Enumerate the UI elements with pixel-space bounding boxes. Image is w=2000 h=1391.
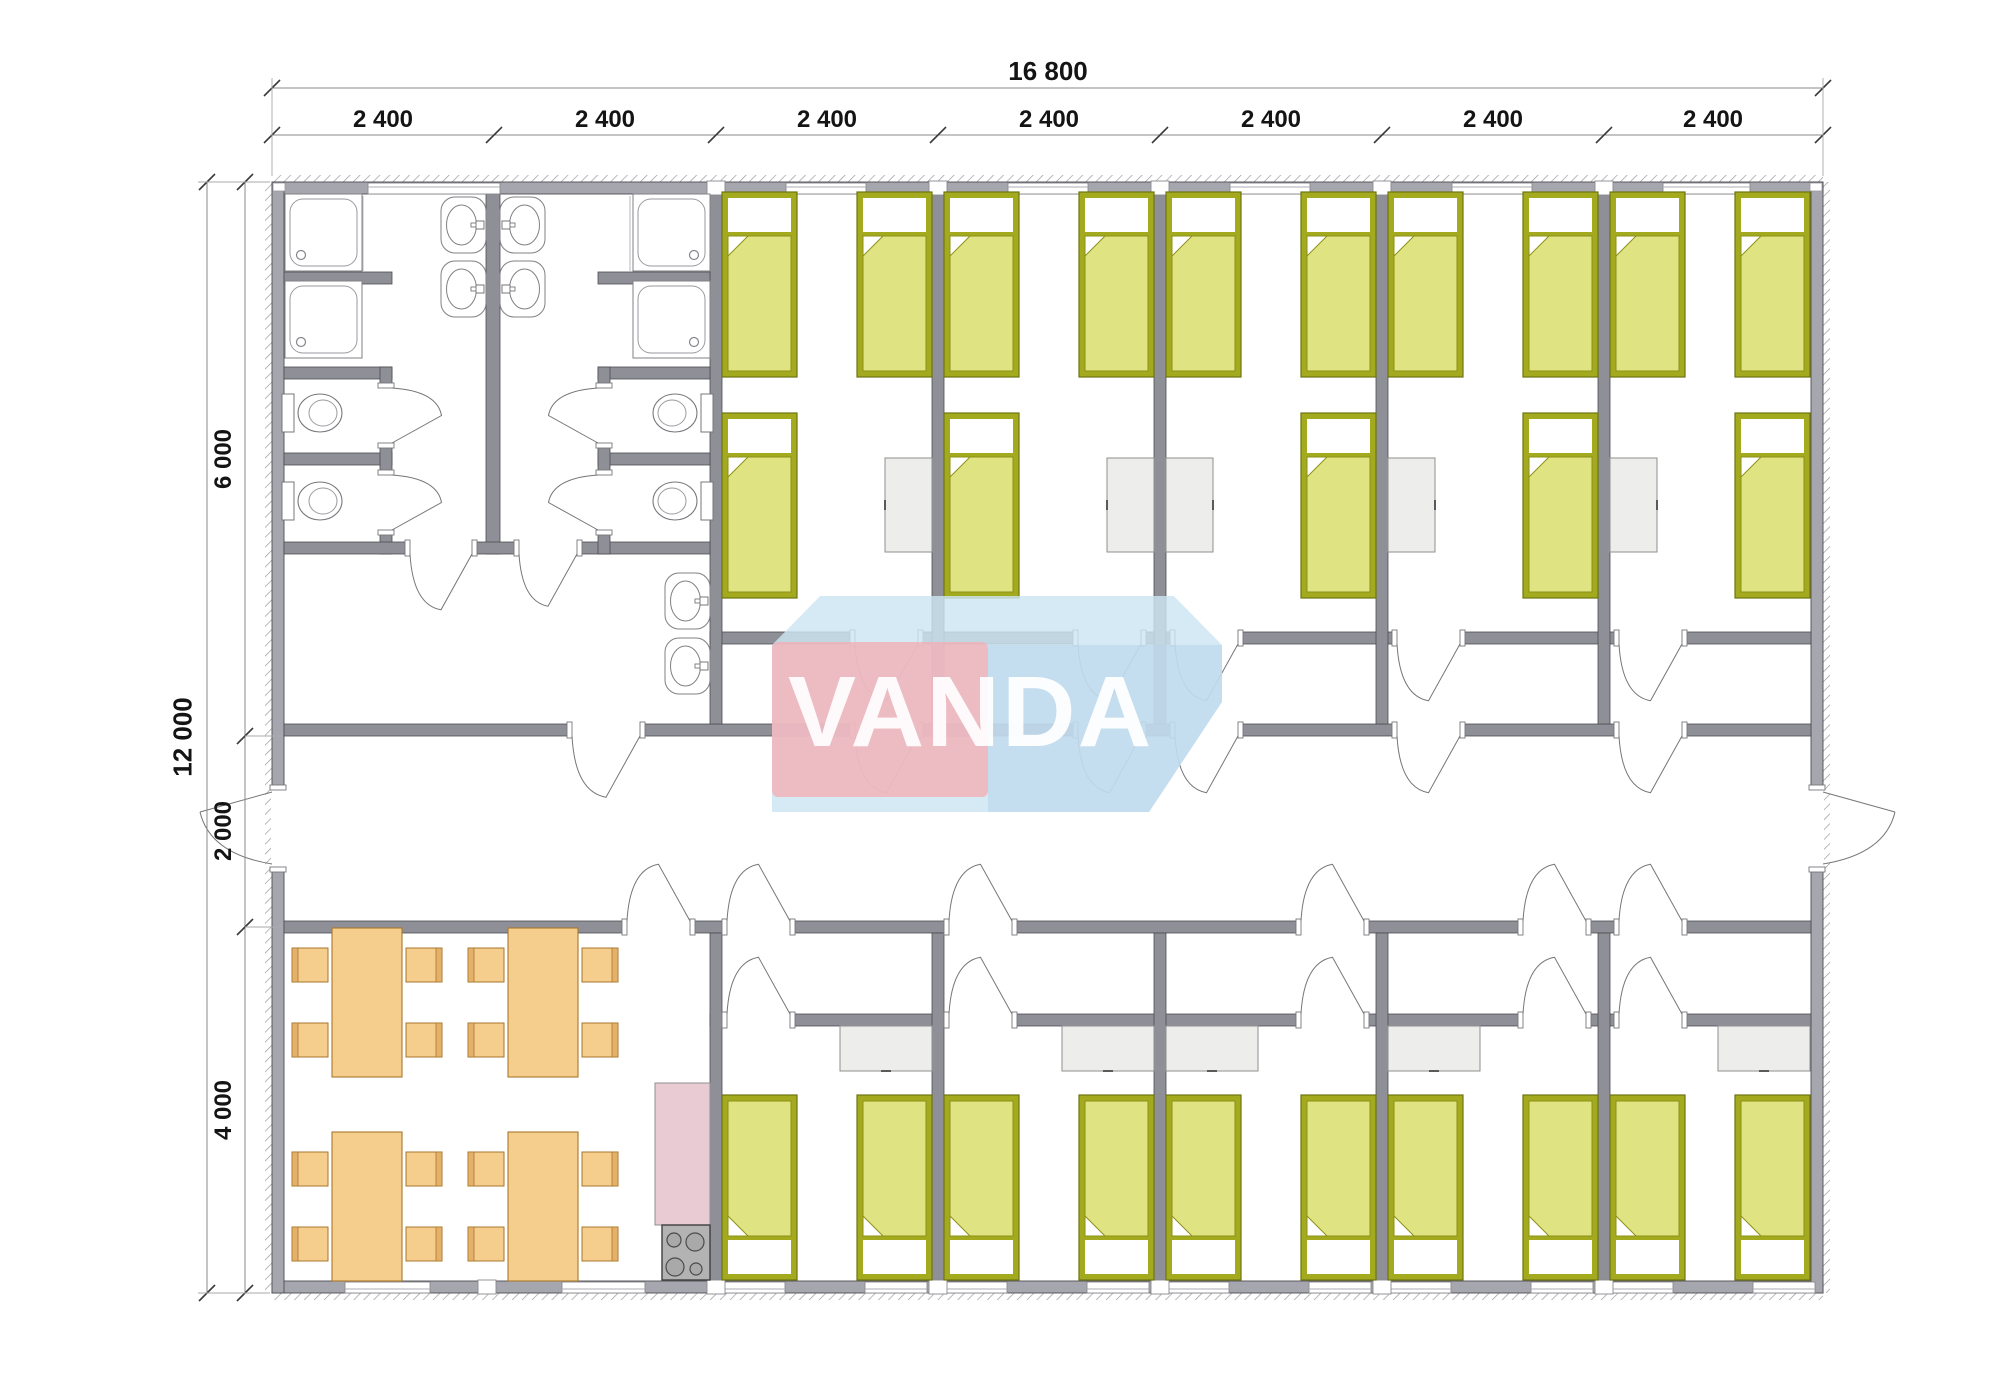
interior-wall <box>284 453 392 465</box>
bed-mattress <box>728 457 791 592</box>
door-jamb <box>1296 919 1301 935</box>
window <box>1167 1282 1229 1293</box>
desk <box>1166 458 1213 552</box>
door-jamb <box>1682 1012 1687 1028</box>
door-jamb <box>567 722 572 738</box>
door-jamb <box>640 722 645 738</box>
stove-burner <box>667 1233 681 1247</box>
door-opening <box>1523 1013 1586 1027</box>
chair-backrest <box>292 1152 298 1186</box>
bed-pillow <box>863 1240 926 1274</box>
door-jamb <box>1614 722 1619 738</box>
exterior-door-swing <box>1823 812 1895 864</box>
bed-pillow <box>1741 1240 1804 1274</box>
door-jamb <box>1518 919 1523 935</box>
sink-tap-spout <box>510 287 515 291</box>
bed-mattress <box>1741 1101 1804 1236</box>
door-jamb <box>850 630 855 646</box>
door-jamb <box>270 785 286 790</box>
chair-backrest <box>436 1023 442 1057</box>
bed-pillow <box>1307 198 1370 232</box>
interior-wall <box>1154 194 1166 724</box>
door-opening <box>572 723 640 737</box>
window <box>786 183 866 194</box>
door-opening <box>855 723 918 737</box>
stove-burner <box>690 1263 702 1275</box>
window <box>345 1282 430 1293</box>
shower-tray <box>285 194 362 271</box>
interior-wall <box>1598 194 1610 724</box>
door-jamb <box>1238 722 1243 738</box>
interior-wall <box>1598 933 1610 1281</box>
window <box>723 1282 785 1293</box>
door-jamb <box>1682 630 1687 646</box>
toilet-tank <box>701 482 713 520</box>
bed-pillow <box>863 198 926 232</box>
window <box>1309 1282 1371 1293</box>
bed-mattress <box>1741 236 1804 371</box>
door-jamb <box>1460 630 1465 646</box>
door-jamb <box>1809 867 1825 872</box>
sink-tap <box>502 221 510 229</box>
window <box>945 1282 1007 1293</box>
door-opening <box>379 475 393 530</box>
desk <box>885 458 932 552</box>
door-opening <box>519 541 577 555</box>
door-opening <box>949 920 1012 934</box>
toilet-bowl <box>298 482 342 520</box>
bed-pillow <box>1616 198 1679 232</box>
bed-mattress <box>863 236 926 371</box>
window <box>1753 1282 1815 1293</box>
dim-segment-label: 2 400 <box>1683 106 1743 133</box>
chair-backrest <box>468 1023 474 1057</box>
dim-segment-label: 2 400 <box>353 106 413 133</box>
desk <box>1388 458 1435 552</box>
interior-wall <box>710 194 722 724</box>
bed-pillow <box>1172 198 1235 232</box>
bed-mattress <box>1529 1101 1592 1236</box>
door-opening <box>1523 920 1586 934</box>
door-jamb <box>850 722 855 738</box>
desk <box>1107 458 1154 552</box>
door-opening <box>1175 723 1238 737</box>
door-jamb <box>1809 785 1825 790</box>
door-jamb <box>378 383 394 388</box>
module-joint <box>1373 1280 1391 1294</box>
bed-mattress <box>728 1101 791 1236</box>
bed-pillow <box>1529 419 1592 453</box>
desk <box>1062 1026 1154 1071</box>
window <box>865 1282 927 1293</box>
door-jamb <box>1141 630 1146 646</box>
interior-wall <box>710 933 722 1281</box>
bed-mattress <box>1307 1101 1370 1236</box>
bed-pillow <box>1307 1240 1370 1274</box>
door-jamb <box>1012 919 1017 935</box>
module-joint <box>1151 1280 1169 1294</box>
door-jamb <box>622 919 627 935</box>
desk <box>1166 1026 1258 1071</box>
door-jamb <box>944 1012 949 1028</box>
wall-hatch <box>272 1293 1823 1300</box>
window <box>368 183 500 194</box>
bed-mattress <box>1172 1101 1235 1236</box>
sink-tap <box>700 597 708 605</box>
interior-wall <box>1376 933 1388 1281</box>
bed-mattress <box>1616 236 1679 371</box>
door-jamb <box>1460 722 1465 738</box>
module-joint <box>929 1280 947 1294</box>
shower-tray <box>285 281 362 358</box>
wall-hatch <box>272 175 1823 182</box>
door-jamb <box>918 722 923 738</box>
module-joint <box>478 1280 496 1294</box>
dimension-total-height: 12 000 <box>168 697 199 777</box>
door-jamb <box>270 867 286 872</box>
door-jamb <box>790 919 795 935</box>
bed-pillow <box>1394 1240 1457 1274</box>
door-opening <box>1619 920 1682 934</box>
door-jamb <box>378 470 394 475</box>
door-opening <box>1619 631 1682 645</box>
toilet-tank <box>701 394 713 432</box>
dim-segment-label: 2 400 <box>1463 106 1523 133</box>
bed-mattress <box>1307 457 1370 592</box>
door-jamb <box>1392 630 1397 646</box>
door-opening <box>1397 631 1460 645</box>
bed-pillow <box>950 419 1013 453</box>
chair-backrest <box>468 1152 474 1186</box>
bed-pillow <box>1085 198 1148 232</box>
bed-mattress <box>1085 1101 1148 1236</box>
bed-mattress <box>863 1101 926 1236</box>
bed-pillow <box>950 198 1013 232</box>
door-jamb <box>1073 722 1078 738</box>
bed-pillow <box>728 1240 791 1274</box>
dim-segment-label: 2 400 <box>797 106 857 133</box>
door-jamb <box>1614 1012 1619 1028</box>
window <box>1008 183 1088 194</box>
door-opening <box>1175 631 1238 645</box>
chair-backrest <box>612 1227 618 1261</box>
door-opening <box>727 920 790 934</box>
door-jamb <box>1296 1012 1301 1028</box>
bed-pillow <box>950 1240 1013 1274</box>
dim-segment-label: 2 400 <box>1019 106 1079 133</box>
sink-tap <box>700 662 708 670</box>
stove-burner <box>686 1233 704 1251</box>
exterior-wall <box>1811 182 1823 1293</box>
bed-pillow <box>1616 1240 1679 1274</box>
chair-backrest <box>612 948 618 982</box>
door-jamb <box>1073 630 1078 646</box>
window <box>1452 183 1532 194</box>
door-jamb <box>596 530 612 535</box>
interior-wall <box>284 542 410 554</box>
chair-backrest <box>436 1152 442 1186</box>
door-jamb <box>1518 1012 1523 1028</box>
door-jamb <box>1614 630 1619 646</box>
chair-backrest <box>612 1152 618 1186</box>
dimension-total-width: 16 800 <box>1008 56 1088 87</box>
dim-segment-label: 2 400 <box>1241 106 1301 133</box>
desk <box>1388 1026 1480 1071</box>
wall-hatch <box>265 182 272 1293</box>
sink-tap-spout <box>510 223 515 227</box>
dining-table <box>332 1132 402 1281</box>
sink-tap-spout <box>695 664 700 668</box>
bed-pillow <box>1307 419 1370 453</box>
bed-mattress <box>1172 236 1235 371</box>
bed-mattress <box>1529 457 1592 592</box>
module-joint <box>1595 1280 1613 1294</box>
dim-segment-label: 2 400 <box>575 106 635 133</box>
door-jamb <box>514 540 519 556</box>
door-opening <box>597 388 611 443</box>
bed-mattress <box>950 236 1013 371</box>
door-opening <box>727 1013 790 1027</box>
door-opening <box>1301 1013 1364 1027</box>
toilet-bowl <box>298 394 342 432</box>
sink-tap-spout <box>695 599 700 603</box>
bed-pillow <box>728 419 791 453</box>
interior-wall <box>932 194 944 724</box>
desk <box>1610 458 1657 552</box>
door-jamb <box>596 443 612 448</box>
plan-drawing: 2 4002 4002 4002 4002 4002 4002 4006 000… <box>0 0 2000 1391</box>
bed-pillow <box>728 198 791 232</box>
stove-burner <box>666 1258 684 1276</box>
bed-mattress <box>1394 1101 1457 1236</box>
sink-tap <box>476 285 484 293</box>
door-opening <box>1619 1013 1682 1027</box>
bed-mattress <box>1616 1101 1679 1236</box>
bed-mattress <box>1307 236 1370 371</box>
bed-pillow <box>1529 198 1592 232</box>
dim-segment-label: 4 000 <box>210 1080 237 1140</box>
window <box>1531 1282 1593 1293</box>
bed-mattress <box>1529 236 1592 371</box>
window <box>562 1282 645 1293</box>
interior-wall <box>486 194 500 554</box>
wall-corner-notch <box>1810 183 1822 191</box>
door-opening <box>597 475 611 530</box>
door-jamb <box>690 919 695 935</box>
door-jamb <box>405 540 410 556</box>
bed-mattress <box>950 1101 1013 1236</box>
toilet-bowl <box>653 394 697 432</box>
desk <box>840 1026 932 1071</box>
sink-tap <box>502 285 510 293</box>
bed-pillow <box>1741 198 1804 232</box>
door-jamb <box>1238 630 1243 646</box>
door-jamb <box>1364 919 1369 935</box>
door-opening <box>410 541 472 555</box>
sink-tap-spout <box>471 287 476 291</box>
bed-mattress <box>950 457 1013 592</box>
sink-tap-spout <box>471 223 476 227</box>
kitchen-counter <box>655 1083 710 1225</box>
window <box>1389 1282 1451 1293</box>
interior-wall <box>284 367 392 379</box>
toilet-tank <box>282 482 294 520</box>
door-jamb <box>1614 919 1619 935</box>
interior-wall <box>577 542 710 554</box>
window <box>1087 1282 1149 1293</box>
door-jamb <box>1170 722 1175 738</box>
door-jamb <box>722 1012 727 1028</box>
toilet-tank <box>282 394 294 432</box>
door-jamb <box>1012 1012 1017 1028</box>
dining-table <box>508 1132 578 1281</box>
dim-segment-label: 6 000 <box>210 429 237 489</box>
door-jamb <box>944 919 949 935</box>
door-jamb <box>1364 1012 1369 1028</box>
door-opening <box>855 631 918 645</box>
bed-pillow <box>1085 1240 1148 1274</box>
door-opening <box>949 1013 1012 1027</box>
door-jamb <box>596 383 612 388</box>
exterior-wall <box>272 182 284 1293</box>
bed-mattress <box>1085 236 1148 371</box>
door-jamb <box>1682 919 1687 935</box>
bed-pillow <box>1529 1240 1592 1274</box>
chair-backrest <box>292 1227 298 1261</box>
dining-table <box>508 928 578 1077</box>
door-opening <box>1619 723 1682 737</box>
door-opening <box>1810 790 1824 867</box>
door-opening <box>627 920 690 934</box>
bed-mattress <box>728 236 791 371</box>
interior-wall <box>598 367 710 379</box>
door-jamb <box>1170 630 1175 646</box>
chair-backrest <box>292 948 298 982</box>
exterior-door-leaf <box>1823 792 1895 812</box>
door-opening <box>1397 723 1460 737</box>
chair-backrest <box>468 948 474 982</box>
door-jamb <box>378 443 394 448</box>
sink-tap <box>476 221 484 229</box>
bed-pillow <box>1741 419 1804 453</box>
wall-hatch <box>1823 182 1830 1293</box>
wall-corner-notch <box>273 183 285 191</box>
door-jamb <box>722 919 727 935</box>
door-opening <box>1078 723 1141 737</box>
bed-pillow <box>1172 1240 1235 1274</box>
shower-tray <box>633 281 710 358</box>
desk <box>1718 1026 1810 1071</box>
door-jamb <box>1392 722 1397 738</box>
toilet-bowl <box>653 482 697 520</box>
door-opening <box>1078 631 1141 645</box>
dim-segment-label: 2 000 <box>210 801 237 861</box>
interior-wall <box>932 933 944 1281</box>
floor-plan: 2 4002 4002 4002 4002 4002 4002 4006 000… <box>0 0 2000 1391</box>
door-jamb <box>1586 919 1591 935</box>
bed-mattress <box>1741 457 1804 592</box>
door-opening <box>271 790 285 867</box>
interior-wall <box>1154 933 1166 1281</box>
interior-wall <box>598 453 710 465</box>
door-opening <box>379 388 393 443</box>
chair-backrest <box>292 1023 298 1057</box>
door-jamb <box>577 540 582 556</box>
interior-wall <box>284 724 1811 736</box>
door-jamb <box>596 470 612 475</box>
module-joint <box>707 1280 725 1294</box>
door-jamb <box>1141 722 1146 738</box>
chair-backrest <box>436 948 442 982</box>
chair-backrest <box>436 1227 442 1261</box>
shower-tray <box>633 194 710 271</box>
interior-wall <box>1376 194 1388 724</box>
door-opening <box>1301 920 1364 934</box>
bed-mattress <box>1394 236 1457 371</box>
window <box>1611 1282 1673 1293</box>
chair-backrest <box>612 1023 618 1057</box>
door-jamb <box>1682 722 1687 738</box>
door-jamb <box>472 540 477 556</box>
door-jamb <box>1586 1012 1591 1028</box>
chair-backrest <box>468 1227 474 1261</box>
bed-pillow <box>1394 198 1457 232</box>
dining-table <box>332 928 402 1077</box>
door-jamb <box>918 630 923 646</box>
window <box>1230 183 1310 194</box>
door-jamb <box>378 530 394 535</box>
door-jamb <box>790 1012 795 1028</box>
